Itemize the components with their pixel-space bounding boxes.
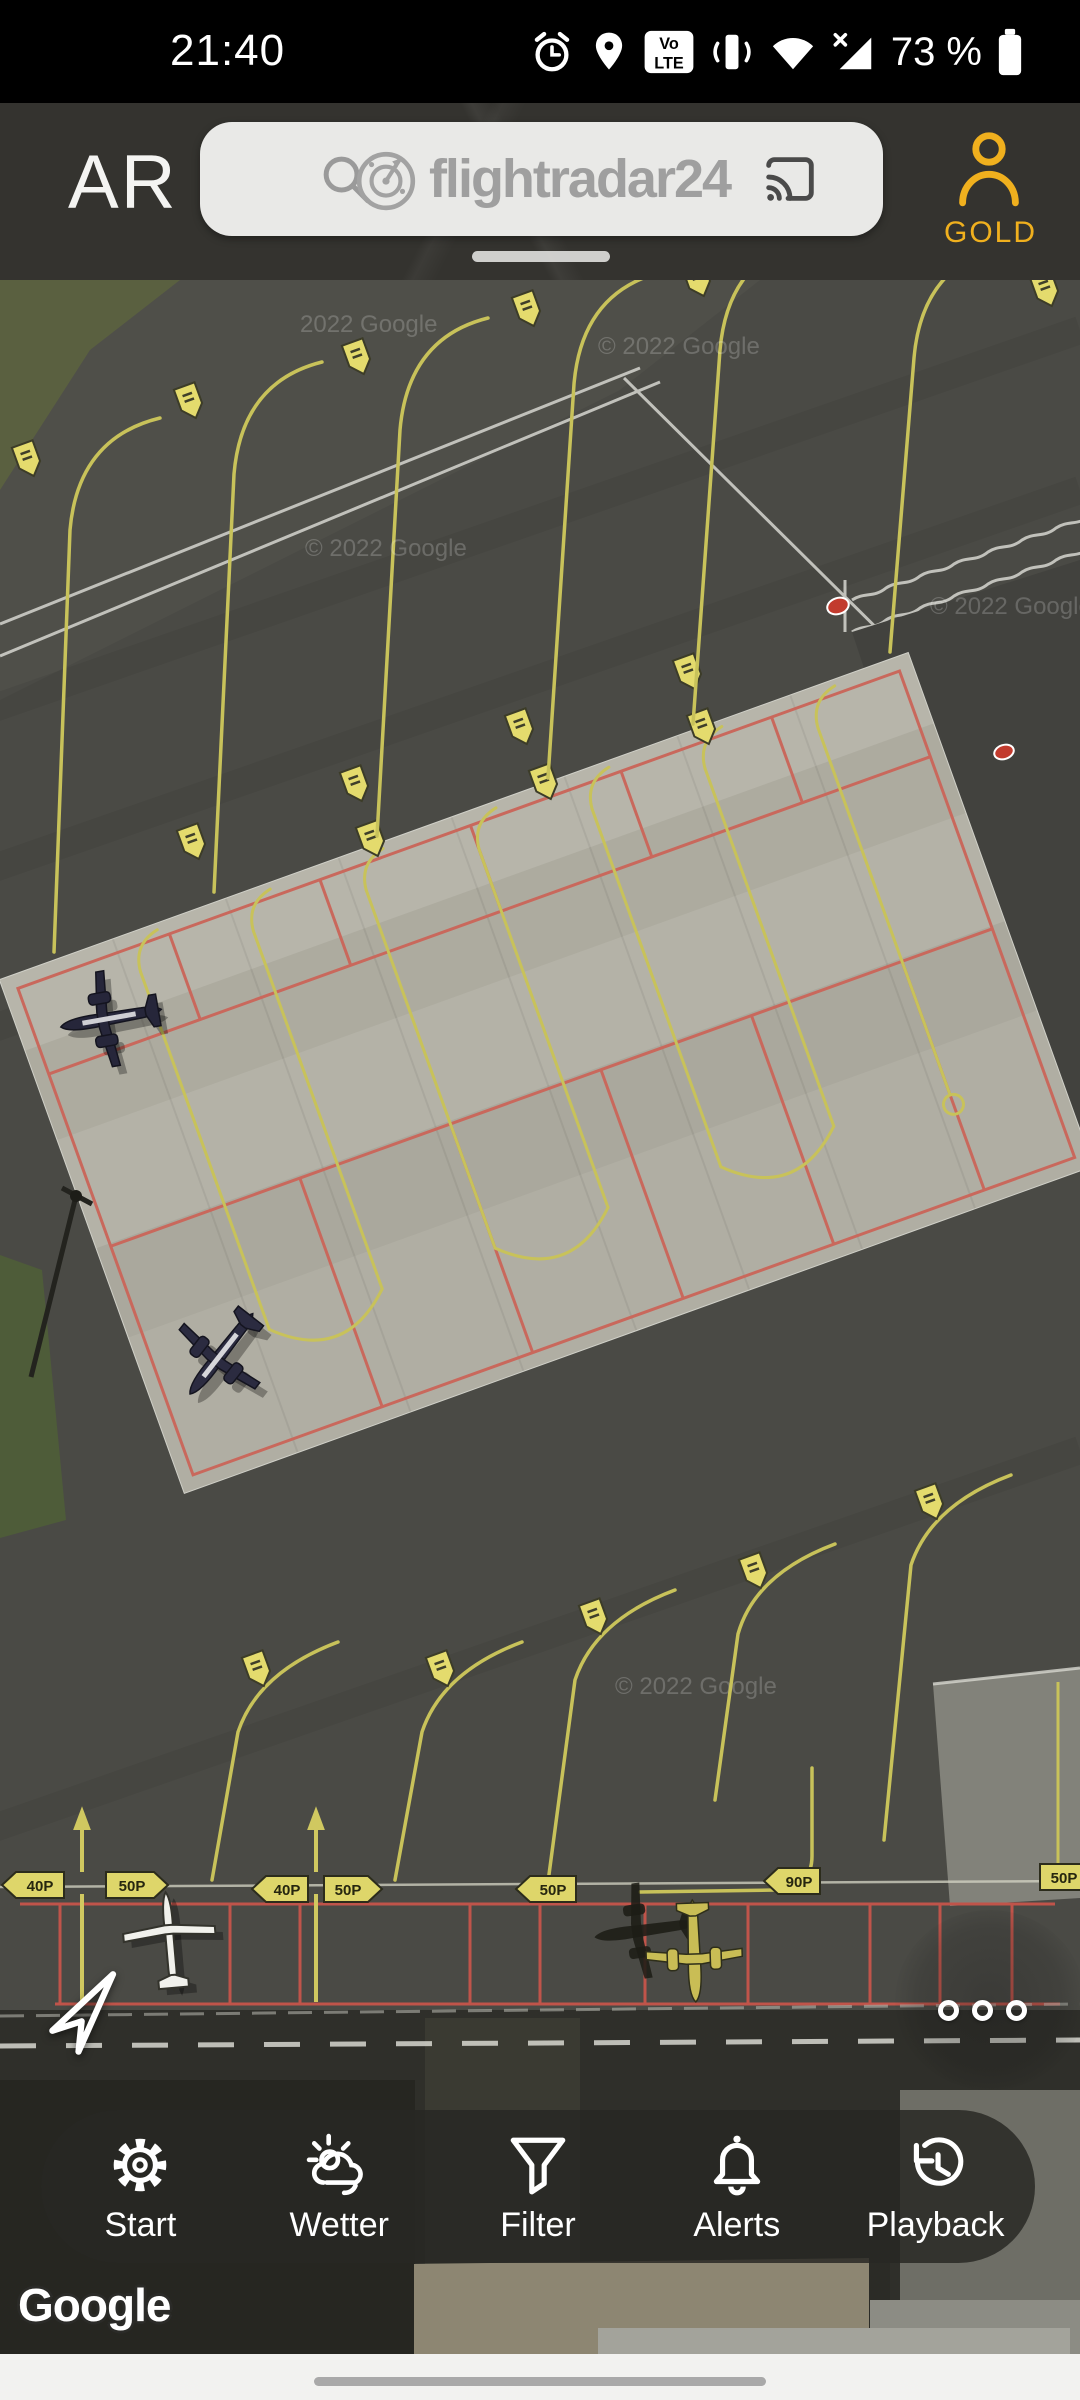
account-person-icon xyxy=(955,131,1023,207)
toolbar-item-alerts[interactable]: Alerts xyxy=(637,2132,836,2242)
status-icons: VoLTE 73 % xyxy=(529,24,1024,80)
battery-percent: 73 % xyxy=(891,30,982,75)
bottom-toolbar: Start Wetter Filter Alerts Playback xyxy=(41,2110,1035,2263)
locate-arrow-button[interactable] xyxy=(44,1968,136,2065)
gear-icon xyxy=(107,2132,173,2198)
svg-text:Vo: Vo xyxy=(659,35,679,53)
dot-icon xyxy=(1006,2000,1027,2021)
toolbar-item-playback[interactable]: Playback xyxy=(836,2132,1035,2242)
sheet-drag-handle[interactable] xyxy=(472,251,610,262)
svg-text:50P: 50P xyxy=(119,1878,146,1895)
wifi-icon xyxy=(769,29,817,75)
gesture-handle[interactable] xyxy=(314,2377,766,2386)
vibrate-icon xyxy=(709,29,755,75)
volte-icon: VoLTE xyxy=(643,29,695,75)
app-header: AR flightradar24 GOLD xyxy=(0,103,1080,280)
locate-arrow-icon xyxy=(44,1968,136,2060)
svg-text:50P: 50P xyxy=(335,1882,362,1899)
account-button[interactable]: GOLD xyxy=(944,131,1034,250)
svg-text:© 2022 Google: © 2022 Google xyxy=(305,535,467,562)
svg-text:40P: 40P xyxy=(27,1878,54,1895)
phone-screen: 21:40 VoLTE 73 % xyxy=(0,0,1080,2400)
svg-text:© 2022 Google: © 2022 Google xyxy=(598,333,760,360)
satellite-map[interactable]: 2022 Google © 2022 Google © 2022 Google … xyxy=(0,280,1080,2400)
signal-x-icon xyxy=(831,29,877,75)
toolbar-label: Wetter xyxy=(289,2208,389,2242)
battery-icon xyxy=(996,28,1024,76)
dot-icon xyxy=(938,2000,959,2021)
dot-icon xyxy=(972,2000,993,2021)
toolbar-item-start[interactable]: Start xyxy=(41,2132,240,2242)
weather-icon xyxy=(306,2132,372,2198)
toolbar-item-filter[interactable]: Filter xyxy=(439,2132,638,2242)
toolbar-label: Alerts xyxy=(693,2208,780,2242)
svg-text:LTE: LTE xyxy=(654,54,684,72)
toolbar-label: Start xyxy=(104,2208,176,2242)
svg-text:50P: 50P xyxy=(540,1882,567,1899)
search-placeholder: flightradar24 xyxy=(429,148,730,210)
toolbar-label: Filter xyxy=(500,2208,576,2242)
alarm-icon xyxy=(529,29,575,75)
location-pin-icon xyxy=(589,29,629,75)
svg-text:90P: 90P xyxy=(786,1874,813,1891)
ar-button[interactable]: AR xyxy=(68,145,178,221)
toolbar-item-weather[interactable]: Wetter xyxy=(240,2132,439,2242)
playback-clock-icon xyxy=(903,2132,969,2198)
radar-logo-icon xyxy=(353,146,419,212)
search-bar[interactable]: flightradar24 xyxy=(200,122,883,236)
more-options-dots[interactable] xyxy=(938,2000,1027,2021)
google-attribution: Google xyxy=(18,2278,170,2332)
system-nav-bar xyxy=(0,2354,1080,2400)
status-bar: 21:40 VoLTE 73 % xyxy=(0,0,1080,103)
svg-text:2022 Google: 2022 Google xyxy=(300,311,437,338)
satellite-imagery: 2022 Google © 2022 Google © 2022 Google … xyxy=(0,280,1080,2400)
svg-text:50P: 50P xyxy=(1051,1870,1078,1887)
svg-text:© 2022 Google: © 2022 Google xyxy=(930,593,1080,620)
toolbar-label: Playback xyxy=(867,2208,1005,2242)
cast-button[interactable] xyxy=(759,148,821,215)
clock: 21:40 xyxy=(170,26,285,76)
account-tier-badge: GOLD xyxy=(944,216,1034,250)
svg-text:© 2022 Google: © 2022 Google xyxy=(615,1673,777,1700)
bell-icon xyxy=(704,2132,770,2198)
funnel-icon xyxy=(505,2132,571,2198)
svg-text:40P: 40P xyxy=(274,1882,301,1899)
